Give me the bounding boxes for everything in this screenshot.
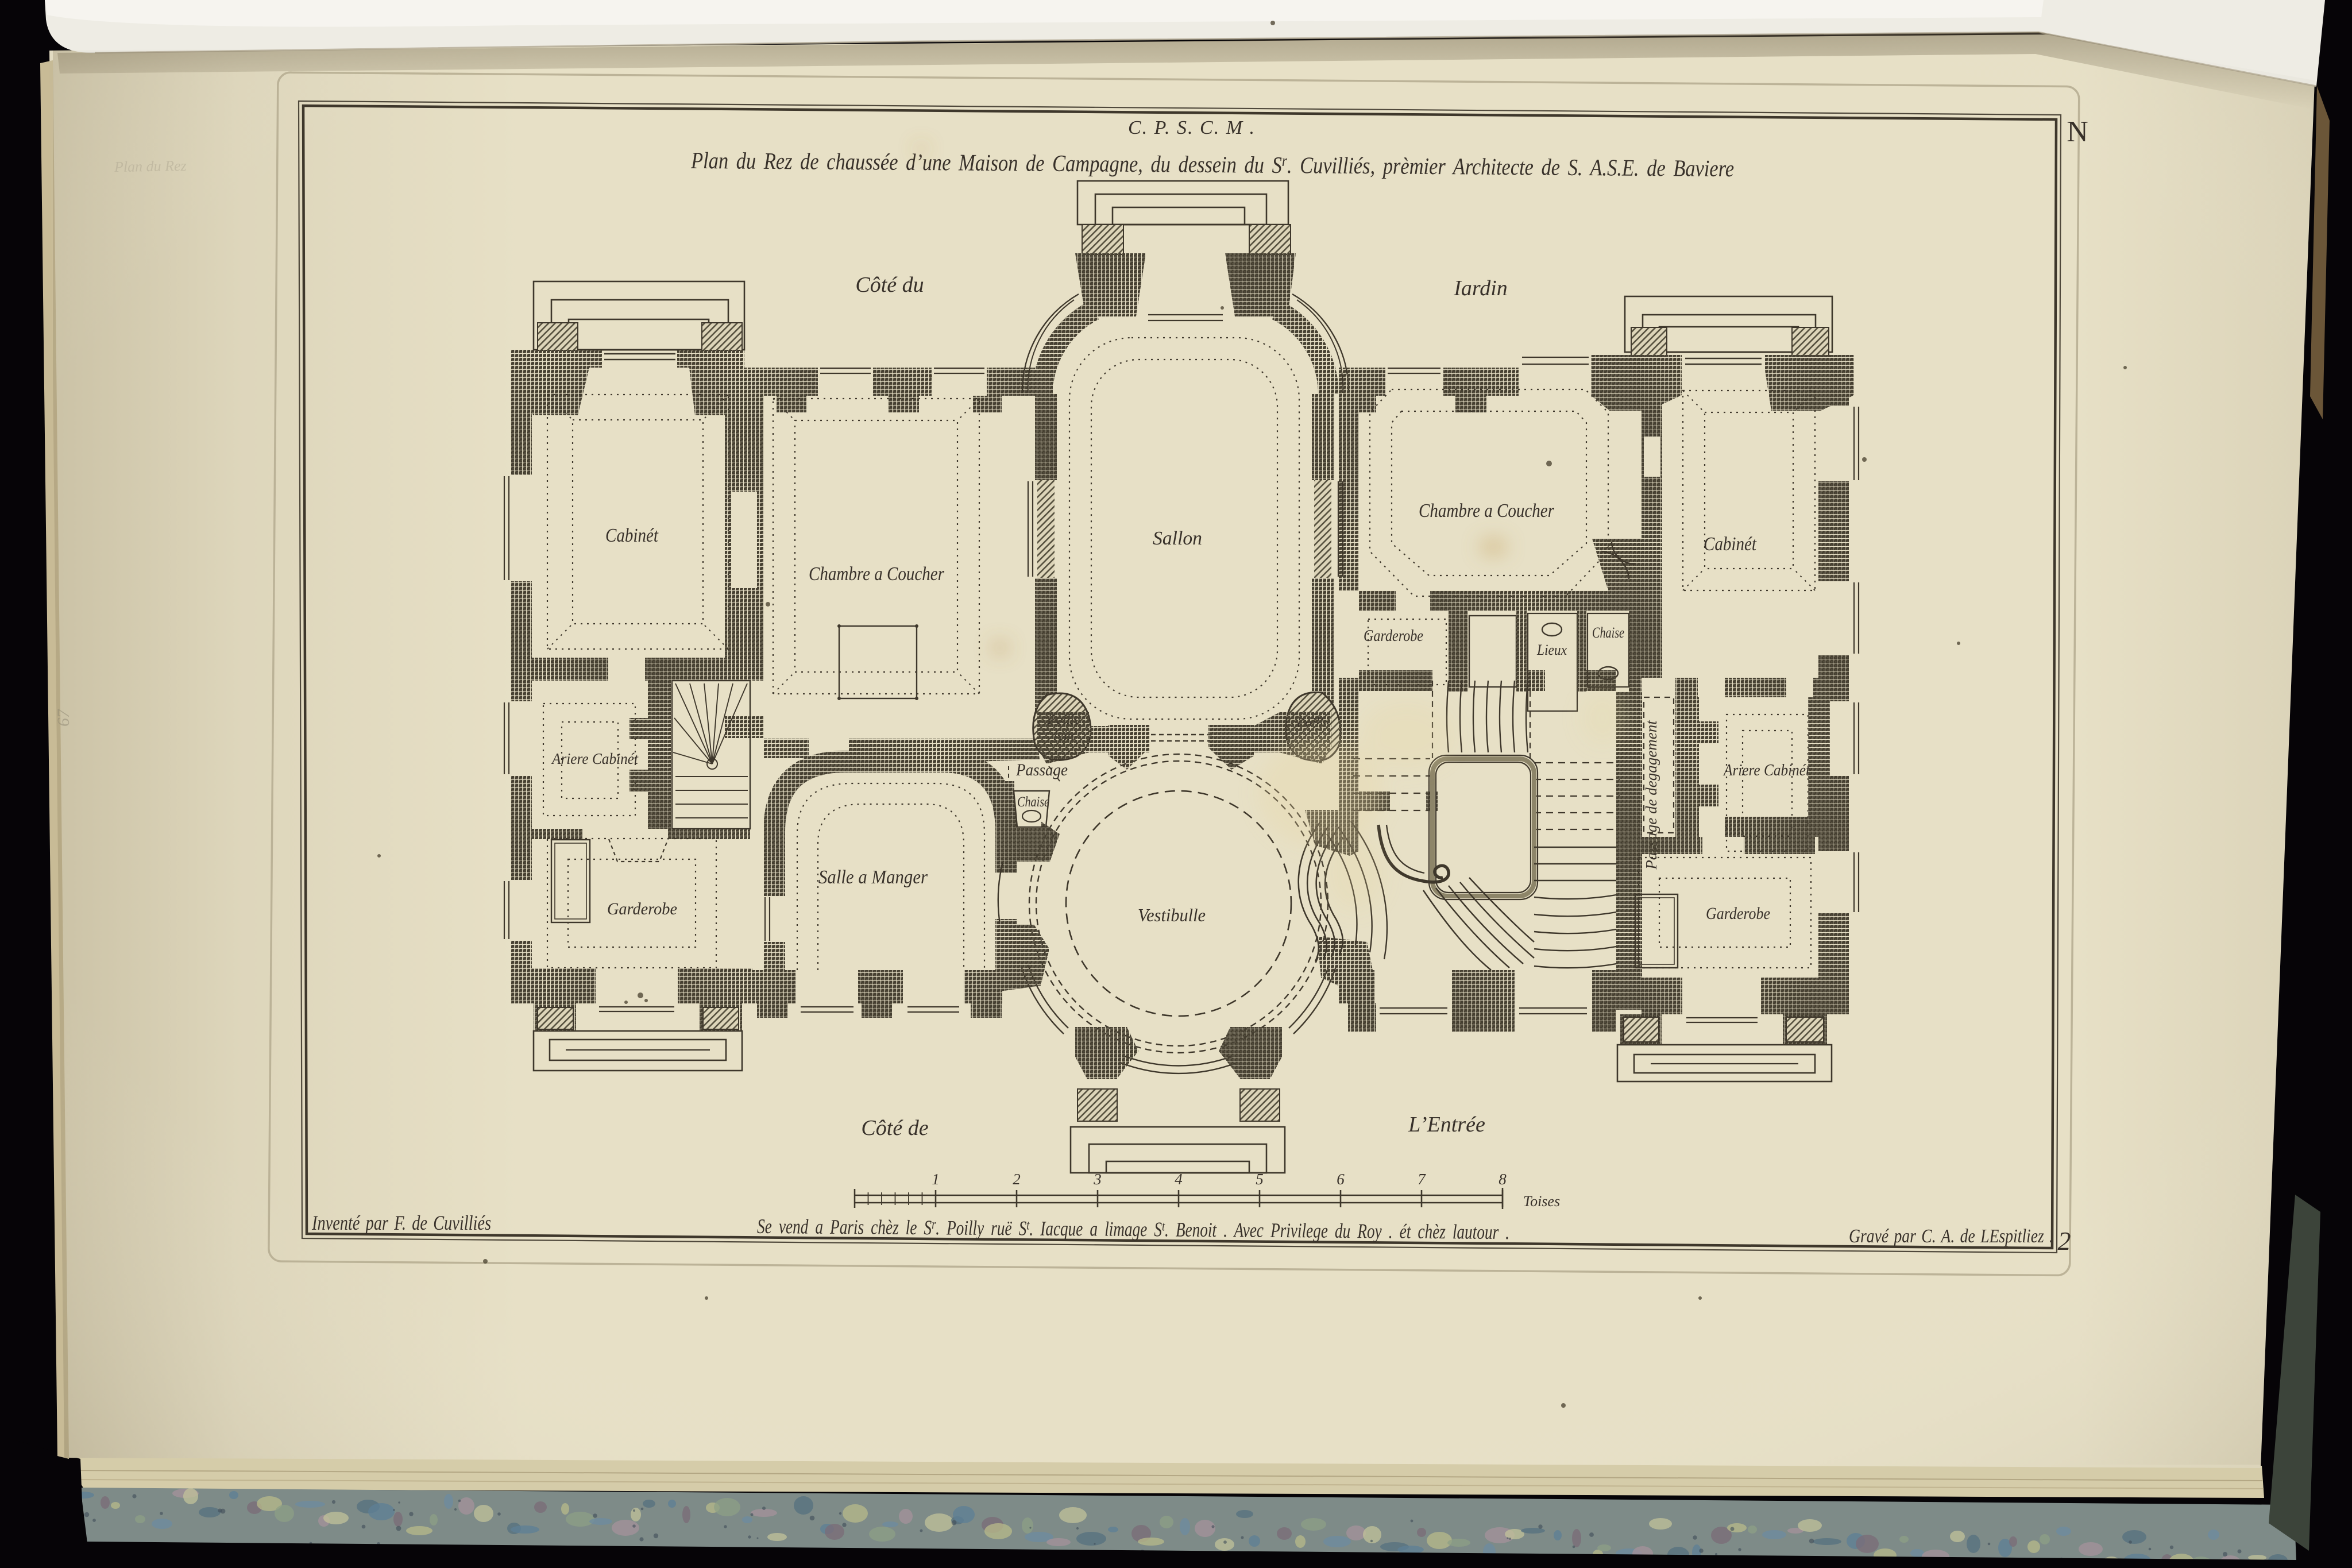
svg-text:6: 6 [1337,1171,1345,1188]
svg-text:Sallon: Sallon [1153,528,1202,549]
svg-text:Toises: Toises [1523,1193,1560,1210]
svg-text:67: 67 [54,708,73,727]
svg-text:Garderobe: Garderobe [1706,904,1770,923]
svg-text:3: 3 [1093,1171,1102,1188]
svg-text:L’Entrée: L’Entrée [1408,1113,1485,1137]
svg-text:Ariere Cabinét: Ariere Cabinét [551,750,639,767]
svg-text:Ariere Cabinét: Ariere Cabinét [1723,762,1810,779]
svg-text:Plan du Rez: Plan du Rez [114,157,187,175]
svg-text:N: N [2067,115,2088,148]
svg-text:Chaise: Chaise [1592,624,1624,641]
svg-text:2: 2 [1013,1171,1021,1188]
svg-text:Inventé par F. de Cuvilliés: Inventé par F. de Cuvilliés [311,1211,491,1234]
svg-text:Vestibulle: Vestibulle [1138,905,1206,925]
svg-text:Chaise: Chaise [1017,794,1049,810]
svg-text:Garderobe: Garderobe [607,899,677,918]
svg-text:1: 1 [932,1171,940,1188]
svg-text:Côté de: Côté de [861,1116,928,1140]
svg-text:C. P. S. C. M .: C. P. S. C. M . [1128,117,1256,138]
svg-text:5: 5 [1256,1171,1264,1188]
svg-text:Iardin: Iardin [1453,276,1508,300]
svg-text:Garderobe: Garderobe [1364,627,1423,645]
svg-text:Gravé par C. A. de LEspitliez: Gravé par C. A. de LEspitliez . [1849,1226,2053,1247]
svg-text:4: 4 [1175,1171,1183,1188]
svg-text:Salle a Manger: Salle a Manger [818,867,928,888]
svg-text:Cabinét: Cabinét [605,525,659,546]
svg-text:Chambre a Coucher: Chambre a Coucher [809,563,945,585]
svg-text:7: 7 [1418,1171,1426,1188]
svg-text:Cabinét: Cabinét [1704,534,1757,555]
svg-text:2: 2 [2058,1226,2071,1256]
svg-text:Chambre a Coucher: Chambre a Coucher [1419,500,1555,522]
svg-text:Lieux: Lieux [1536,642,1567,658]
svg-text:Passage: Passage [1015,760,1068,779]
svg-text:Côté du: Côté du [855,273,924,297]
svg-text:8: 8 [1499,1171,1507,1188]
